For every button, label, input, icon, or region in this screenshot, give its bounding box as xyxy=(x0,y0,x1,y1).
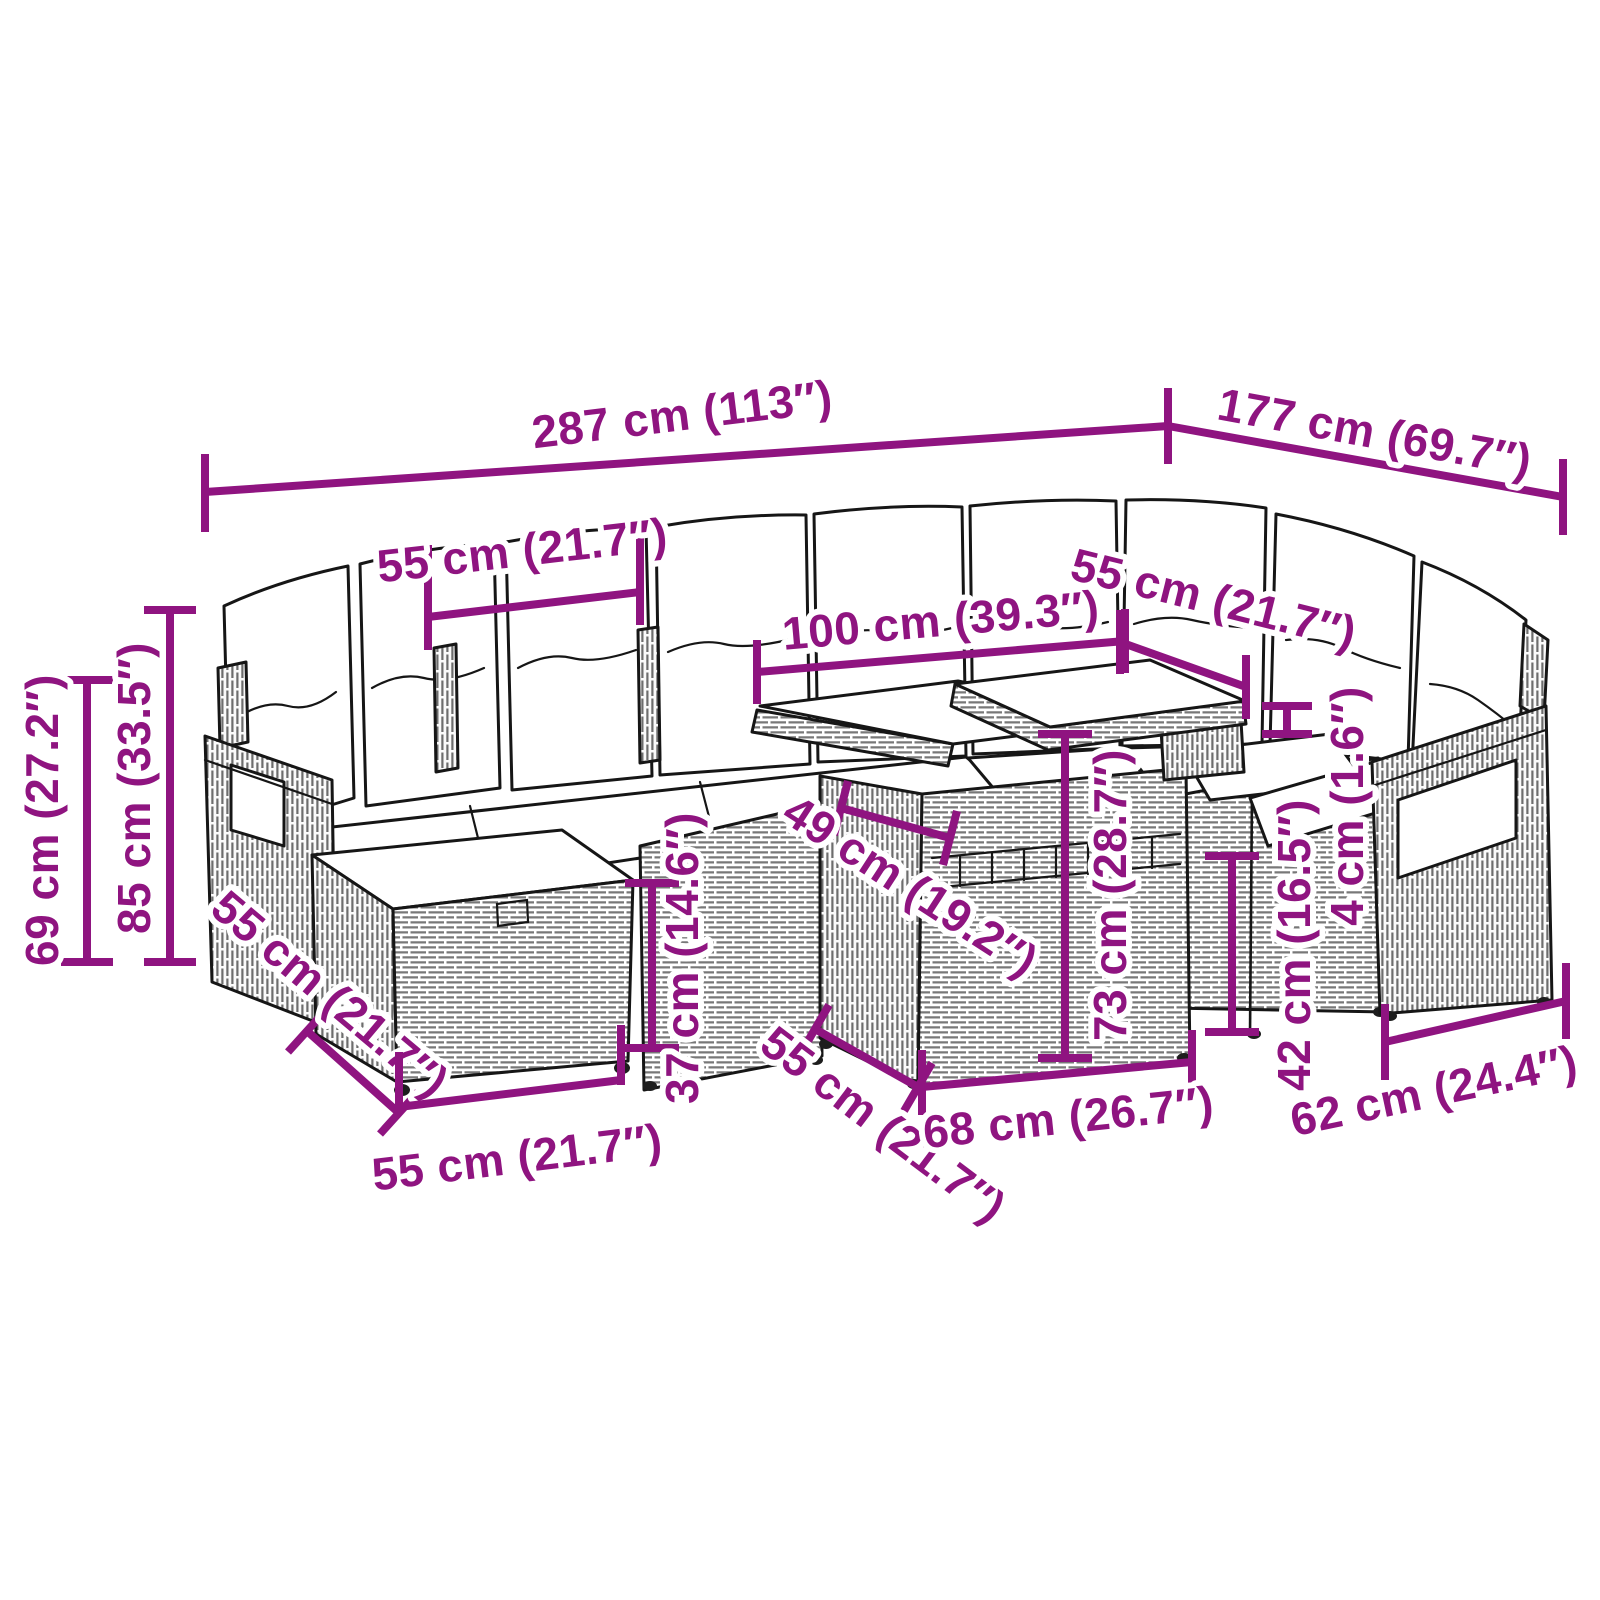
dimension-diagram: 287 cm (113″) 177 cm (69.7″) 55 cm (21.7… xyxy=(0,0,1600,1600)
dimension-armrest-height: 69 cm (27.2″) xyxy=(16,674,113,966)
dimension-back-height: 85 cm (33.5″) xyxy=(108,610,196,962)
dimension-label: 73 cm (28.7″) xyxy=(1084,749,1136,1041)
dimension-label: 55 cm (21.7″) xyxy=(369,1114,665,1201)
dimension-label: 177 cm (69.7″) xyxy=(1214,378,1536,487)
frame-post xyxy=(638,627,660,763)
dimension-label: 37 cm (14.6″) xyxy=(656,812,708,1104)
dimension-label: 287 cm (113″) xyxy=(529,370,835,458)
dimension-label: 69 cm (27.2″) xyxy=(16,674,68,966)
diagram-canvas: 287 cm (113″) 177 cm (69.7″) 55 cm (21.7… xyxy=(0,0,1600,1600)
left-ottoman xyxy=(312,830,633,1096)
dimension-label: 42 cm (16.5″) xyxy=(1268,799,1320,1091)
dimension-label: 85 cm (33.5″) xyxy=(108,642,160,934)
table xyxy=(752,660,1246,1089)
dimension-label: 4 cm (1.6″) xyxy=(1321,686,1373,926)
dimension-label: 62 cm (24.4″) xyxy=(1285,1035,1581,1147)
frame-post xyxy=(434,644,458,772)
right-armrest xyxy=(1372,706,1552,1021)
frame-post xyxy=(218,662,248,748)
dimension-label: 68 cm (26.7″) xyxy=(920,1076,1216,1158)
